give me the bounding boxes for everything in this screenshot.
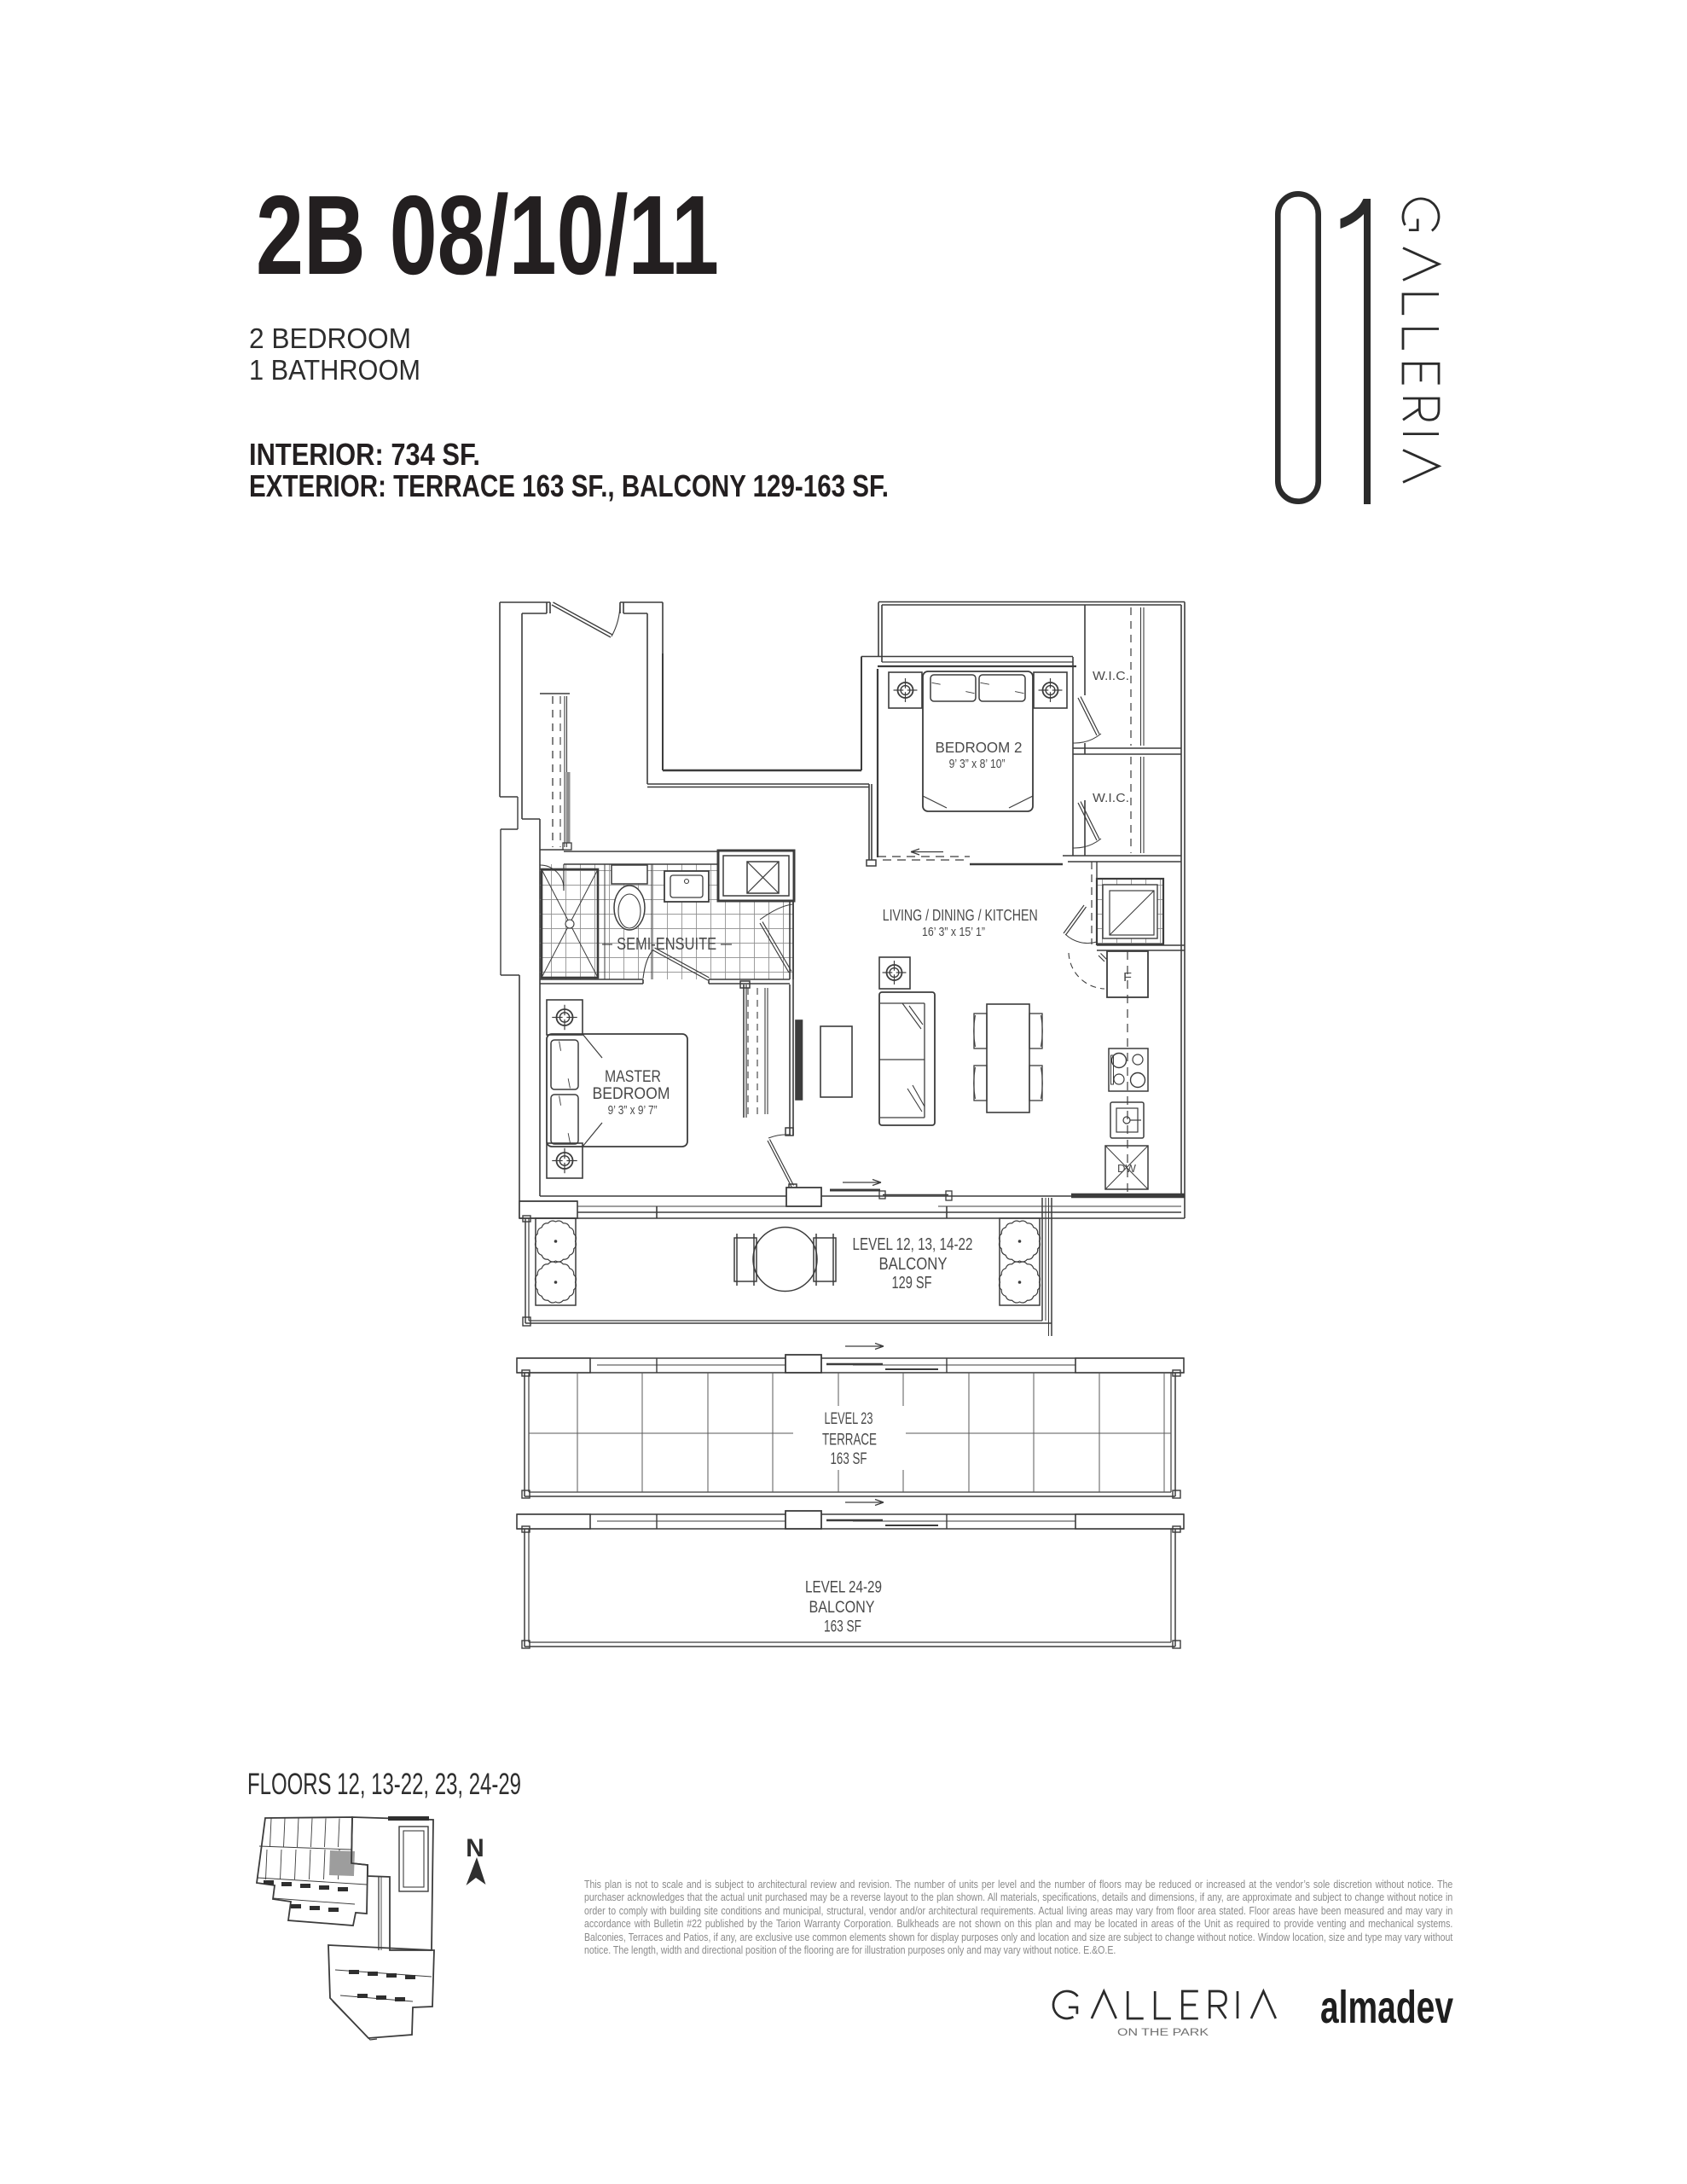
svg-text:LEVEL 24-29: LEVEL 24-29 [805, 1579, 882, 1597]
svg-text:163 SF: 163 SF [824, 1618, 861, 1636]
svg-text:W.I.C.: W.I.C. [1093, 792, 1129, 805]
svg-text:2B 08/10/11: 2B 08/10/11 [256, 172, 719, 298]
svg-text:129 SF: 129 SF [892, 1274, 932, 1292]
svg-text:TERRACE: TERRACE [822, 1432, 877, 1449]
svg-text:BALCONY: BALCONY [809, 1599, 875, 1617]
svg-text:1 BATHROOM: 1 BATHROOM [249, 354, 420, 386]
svg-text:DW: DW [1117, 1162, 1137, 1175]
svg-text:16’ 3” x 15’ 1”: 16’ 3” x 15’ 1” [922, 925, 985, 939]
svg-text:SEMI-ENSUITE: SEMI-ENSUITE [617, 935, 716, 954]
svg-text:F: F [1123, 970, 1132, 985]
svg-text:9’ 3” x 8’ 10”: 9’ 3” x 8’ 10” [949, 757, 1006, 771]
svg-text:BEDROOM: BEDROOM [593, 1085, 670, 1103]
svg-text:N: N [466, 1834, 484, 1862]
svg-text:LEVEL 23: LEVEL 23 [825, 1410, 873, 1428]
svg-text:163 SF: 163 SF [831, 1450, 867, 1468]
svg-text:ON THE PARK: ON THE PARK [1117, 2028, 1209, 2038]
svg-text:MASTER: MASTER [605, 1068, 661, 1086]
svg-text:INTERIOR: 734 SF.: INTERIOR: 734 SF. [249, 437, 480, 472]
svg-text:LIVING / DINING / KITCHEN: LIVING / DINING / KITCHEN [883, 906, 1038, 924]
svg-text:almadev: almadev [1320, 1982, 1453, 2033]
svg-text:EXTERIOR: TERRACE 163 SF., BAL: EXTERIOR: TERRACE 163 SF., BALCONY 129-1… [249, 468, 889, 503]
svg-text:9’ 3” x 9’ 7”: 9’ 3” x 9’ 7” [608, 1103, 658, 1118]
svg-text:W.I.C.: W.I.C. [1093, 670, 1129, 683]
svg-text:LEVEL 12, 13, 14-22: LEVEL 12, 13, 14-22 [853, 1235, 973, 1254]
svg-text:FLOORS 12, 13-22, 23, 24-29: FLOORS 12, 13-22, 23, 24-29 [247, 1768, 521, 1801]
svg-text:BALCONY: BALCONY [879, 1255, 948, 1274]
svg-text:2 BEDROOM: 2 BEDROOM [249, 322, 411, 354]
svg-text:BEDROOM 2: BEDROOM 2 [936, 739, 1023, 756]
